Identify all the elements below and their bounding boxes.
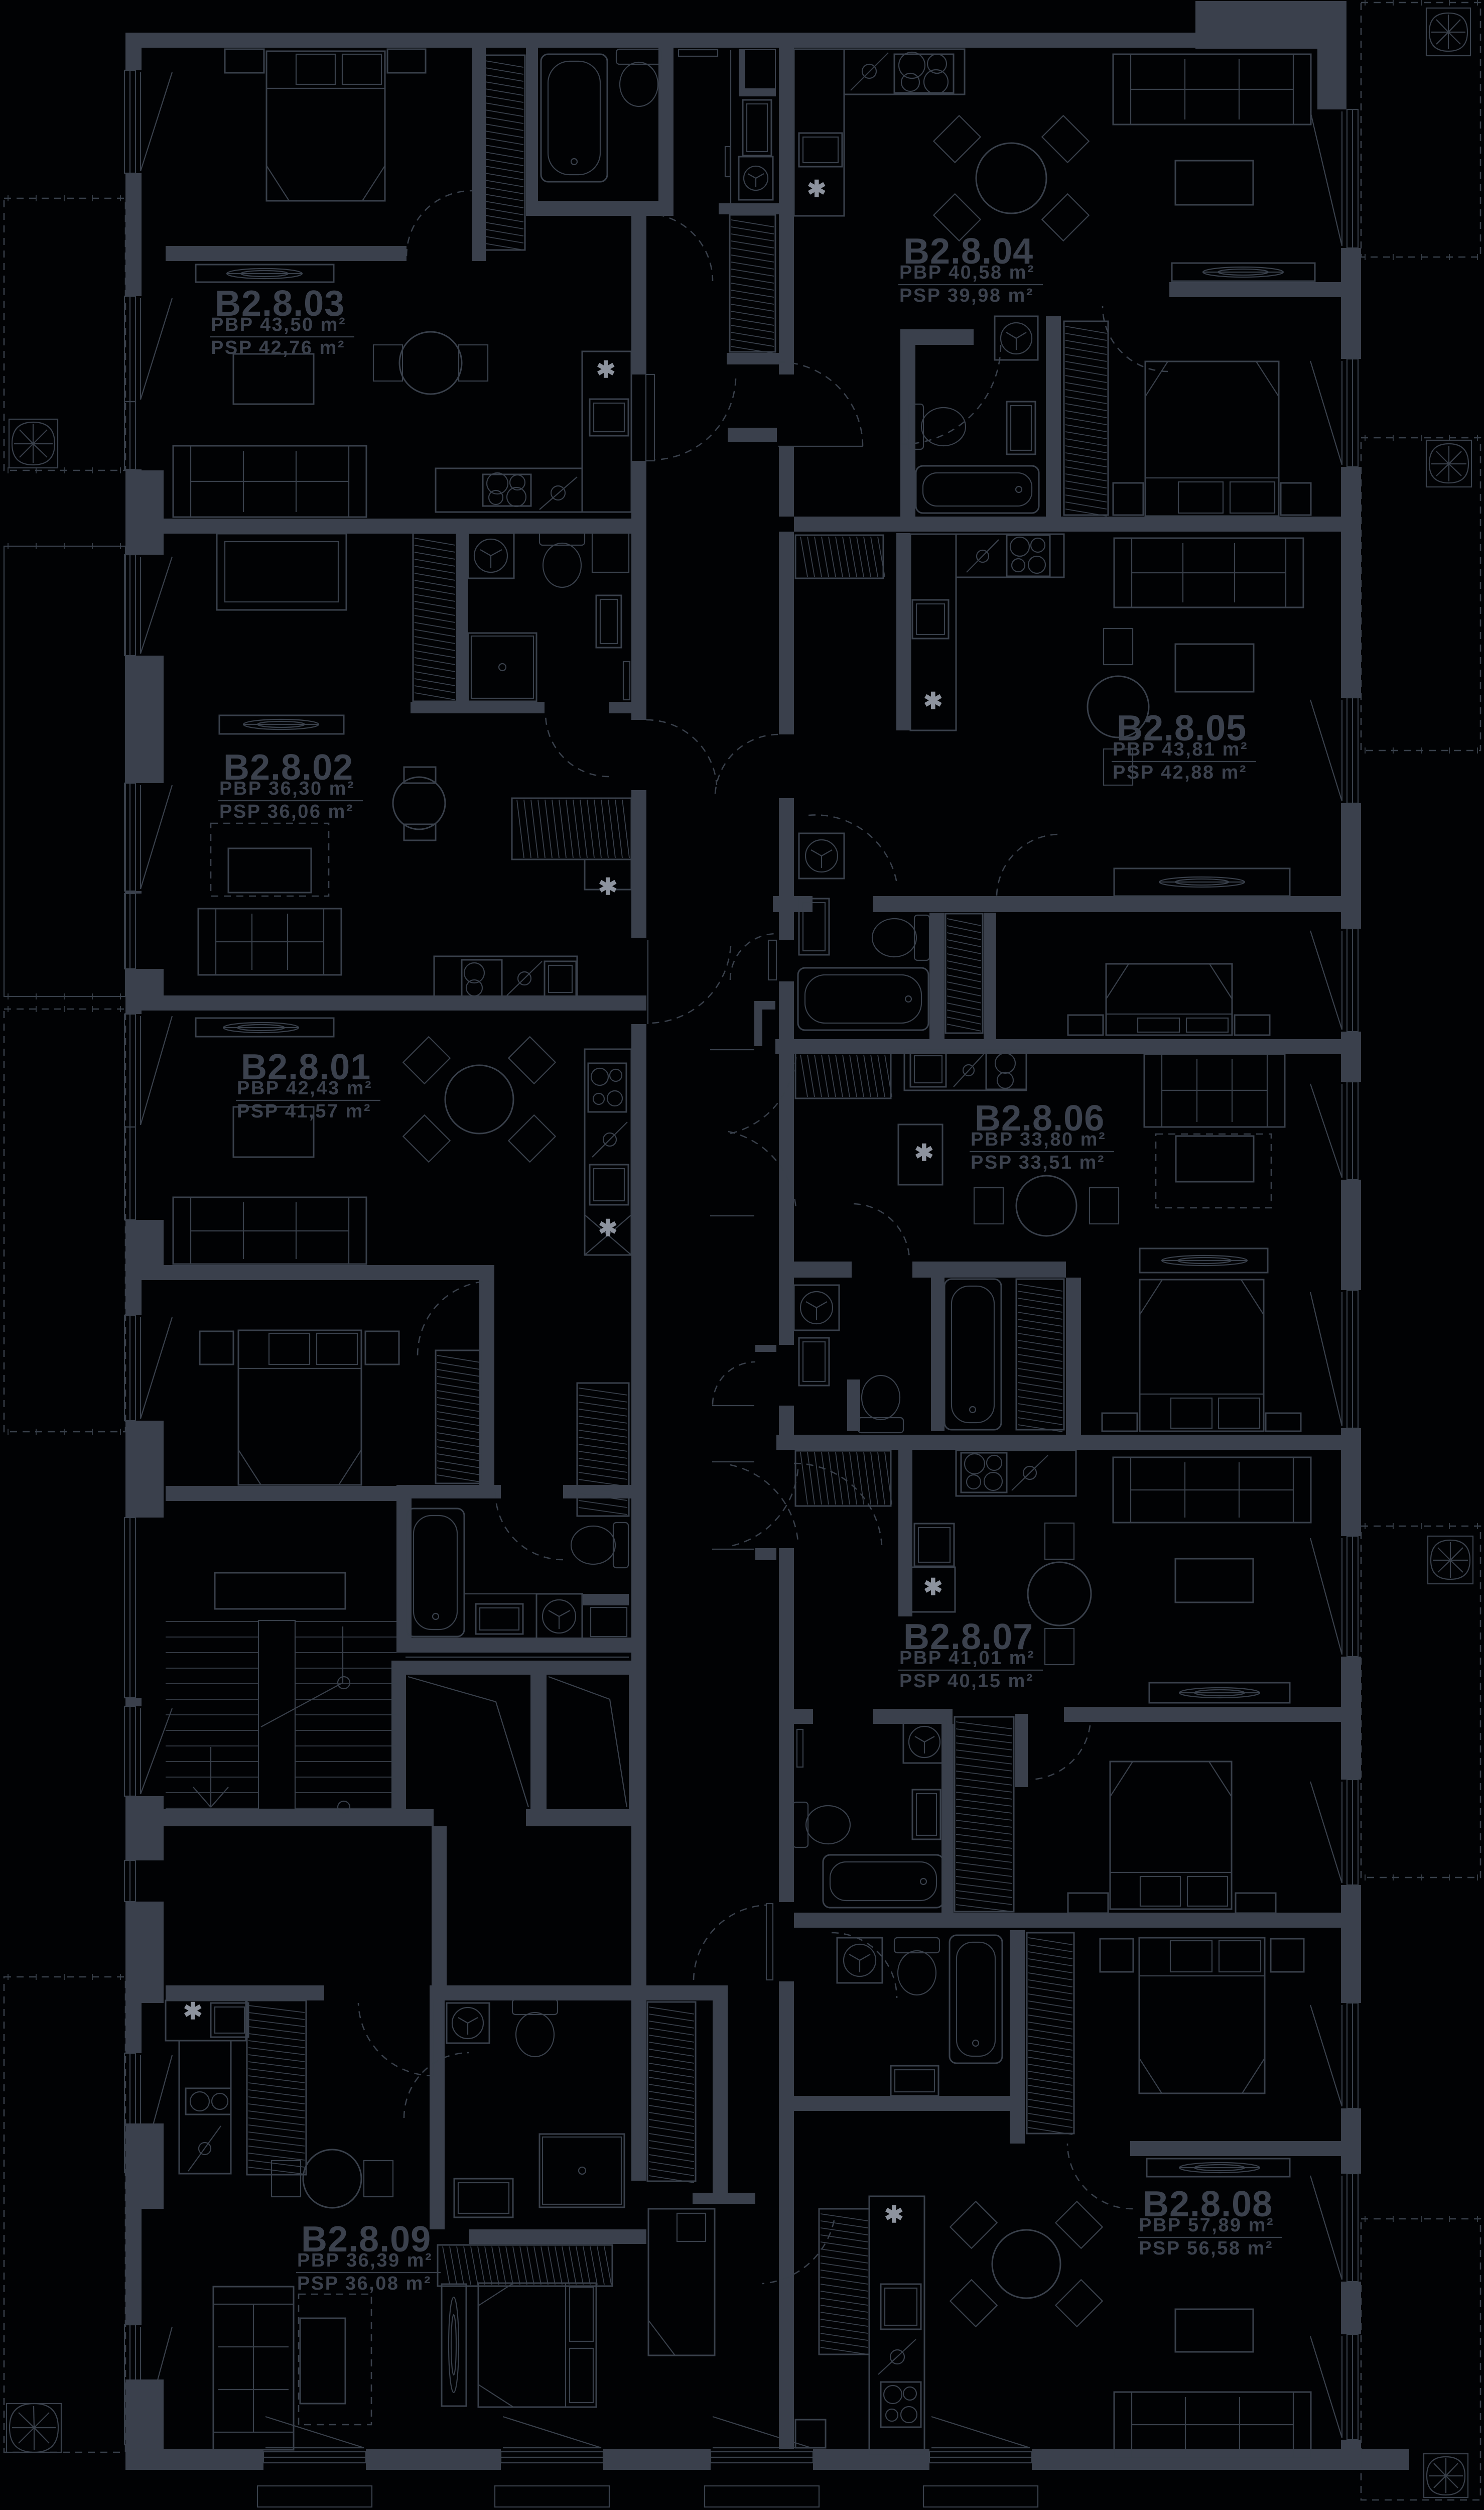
- svg-text:PSP 41,57 m²: PSP 41,57 m²: [237, 1101, 371, 1122]
- svg-text:✱: ✱: [914, 1140, 934, 1166]
- svg-text:✱: ✱: [807, 176, 827, 202]
- svg-text:PBP 41,01 m²: PBP 41,01 m²: [899, 1648, 1035, 1669]
- svg-text:PSP 56,58 m²: PSP 56,58 m²: [1139, 2238, 1273, 2259]
- svg-text:PSP 42,76 m²: PSP 42,76 m²: [211, 337, 345, 358]
- svg-text:✱: ✱: [884, 2201, 904, 2227]
- svg-text:PBP 43,50 m²: PBP 43,50 m²: [211, 314, 346, 335]
- svg-text:✱: ✱: [923, 688, 943, 714]
- svg-text:✱: ✱: [183, 1998, 203, 2024]
- svg-text:✱: ✱: [598, 873, 618, 900]
- svg-text:PSP 36,08 m²: PSP 36,08 m²: [297, 2273, 432, 2294]
- svg-text:✱: ✱: [598, 1215, 618, 1241]
- svg-text:PSP 33,51 m²: PSP 33,51 m²: [971, 1152, 1105, 1173]
- svg-text:✱: ✱: [596, 356, 616, 383]
- svg-text:PBP 36,39 m²: PBP 36,39 m²: [297, 2250, 433, 2271]
- svg-text:✱: ✱: [923, 1574, 943, 1600]
- svg-text:PBP 57,89 m²: PBP 57,89 m²: [1139, 2215, 1274, 2236]
- svg-text:PSP 40,15 m²: PSP 40,15 m²: [899, 1671, 1034, 1692]
- svg-text:PBP 40,58 m²: PBP 40,58 m²: [899, 262, 1035, 283]
- svg-text:PBP 33,80 m²: PBP 33,80 m²: [971, 1129, 1106, 1150]
- svg-text:PBP 42,43 m²: PBP 42,43 m²: [237, 1078, 372, 1099]
- svg-text:PBP 36,30 m²: PBP 36,30 m²: [219, 778, 355, 799]
- svg-text:PSP 39,98 m²: PSP 39,98 m²: [899, 285, 1034, 306]
- svg-text:PSP 36,06 m²: PSP 36,06 m²: [219, 801, 354, 822]
